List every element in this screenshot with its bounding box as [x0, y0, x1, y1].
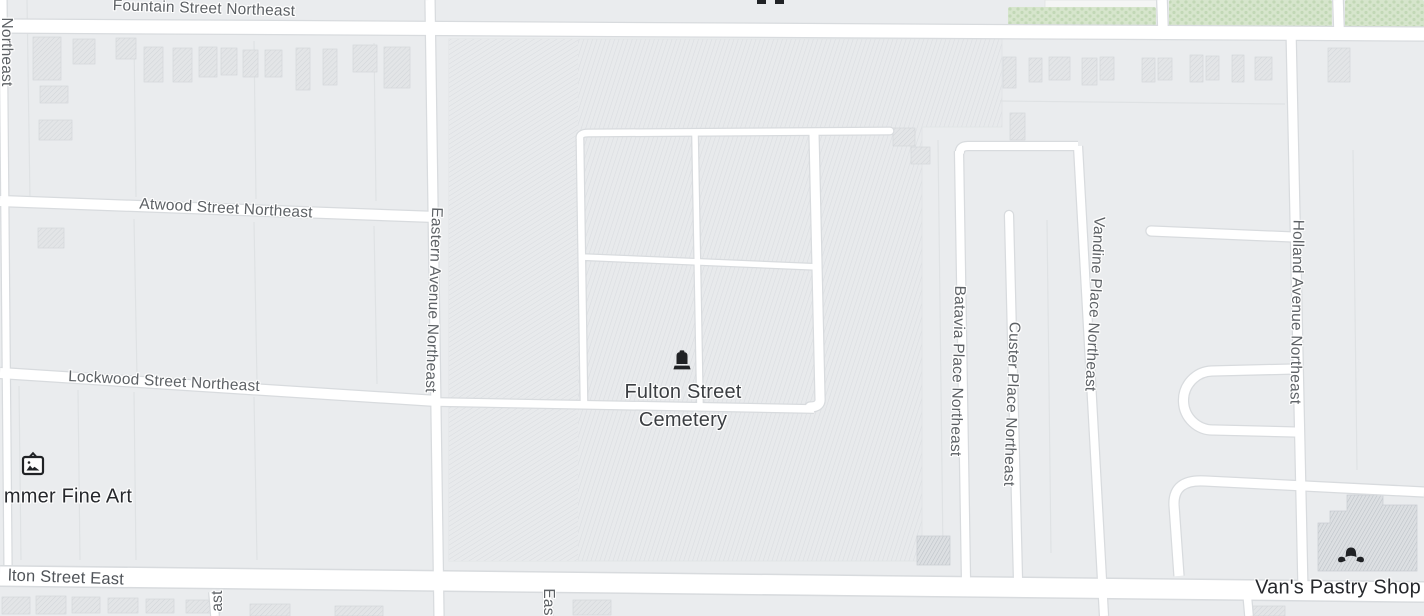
building	[323, 49, 337, 85]
poi-label-cemetery[interactable]: Fulton Street Cemetery	[624, 378, 741, 434]
street-label-holland: Holland Avenue Northeast	[1285, 220, 1306, 405]
building	[1010, 113, 1025, 140]
building	[108, 598, 138, 613]
poi-label-pastry-shop[interactable]: Van's Pastry Shop	[1255, 577, 1421, 600]
poi-label-fine-art[interactable]: mmer Fine Art	[4, 486, 132, 509]
building	[1100, 57, 1114, 80]
building	[116, 38, 136, 59]
building	[1255, 57, 1272, 80]
street-label-fragment-south-left: ast	[209, 590, 227, 611]
street-label-fulton-east: lton Street East	[8, 566, 125, 589]
building	[1003, 57, 1016, 88]
building	[1253, 606, 1285, 616]
map-canvas[interactable]: Fountain Street Northeast Atwood Street …	[0, 0, 1424, 616]
building	[146, 599, 174, 613]
building	[144, 47, 163, 82]
building	[221, 48, 237, 75]
building	[39, 120, 72, 140]
building	[335, 606, 383, 616]
building	[72, 597, 100, 613]
building	[40, 86, 68, 103]
building	[573, 600, 611, 615]
building	[353, 45, 377, 72]
building	[250, 604, 290, 616]
building	[243, 50, 258, 77]
building	[893, 128, 915, 146]
cemetery-grounds	[449, 39, 1002, 561]
building	[1082, 58, 1097, 85]
building	[1190, 55, 1203, 82]
building	[384, 47, 410, 88]
map-graphics	[0, 0, 1424, 616]
building	[1049, 57, 1070, 80]
building	[33, 37, 61, 80]
building	[38, 228, 64, 248]
building	[2, 597, 30, 614]
building	[1232, 55, 1244, 82]
street-label-fragment-south-mid: Eas	[539, 588, 557, 615]
building	[1142, 58, 1155, 82]
building	[73, 39, 95, 64]
building	[199, 47, 217, 77]
building	[1206, 56, 1219, 80]
building	[265, 50, 282, 77]
building	[173, 48, 192, 82]
building	[1328, 48, 1350, 82]
building	[917, 536, 950, 565]
building	[911, 147, 930, 164]
building	[36, 596, 66, 614]
building	[1029, 58, 1042, 82]
building	[1158, 58, 1172, 80]
building	[296, 48, 310, 90]
street-label-fragment-west: Northeast	[0, 18, 15, 87]
